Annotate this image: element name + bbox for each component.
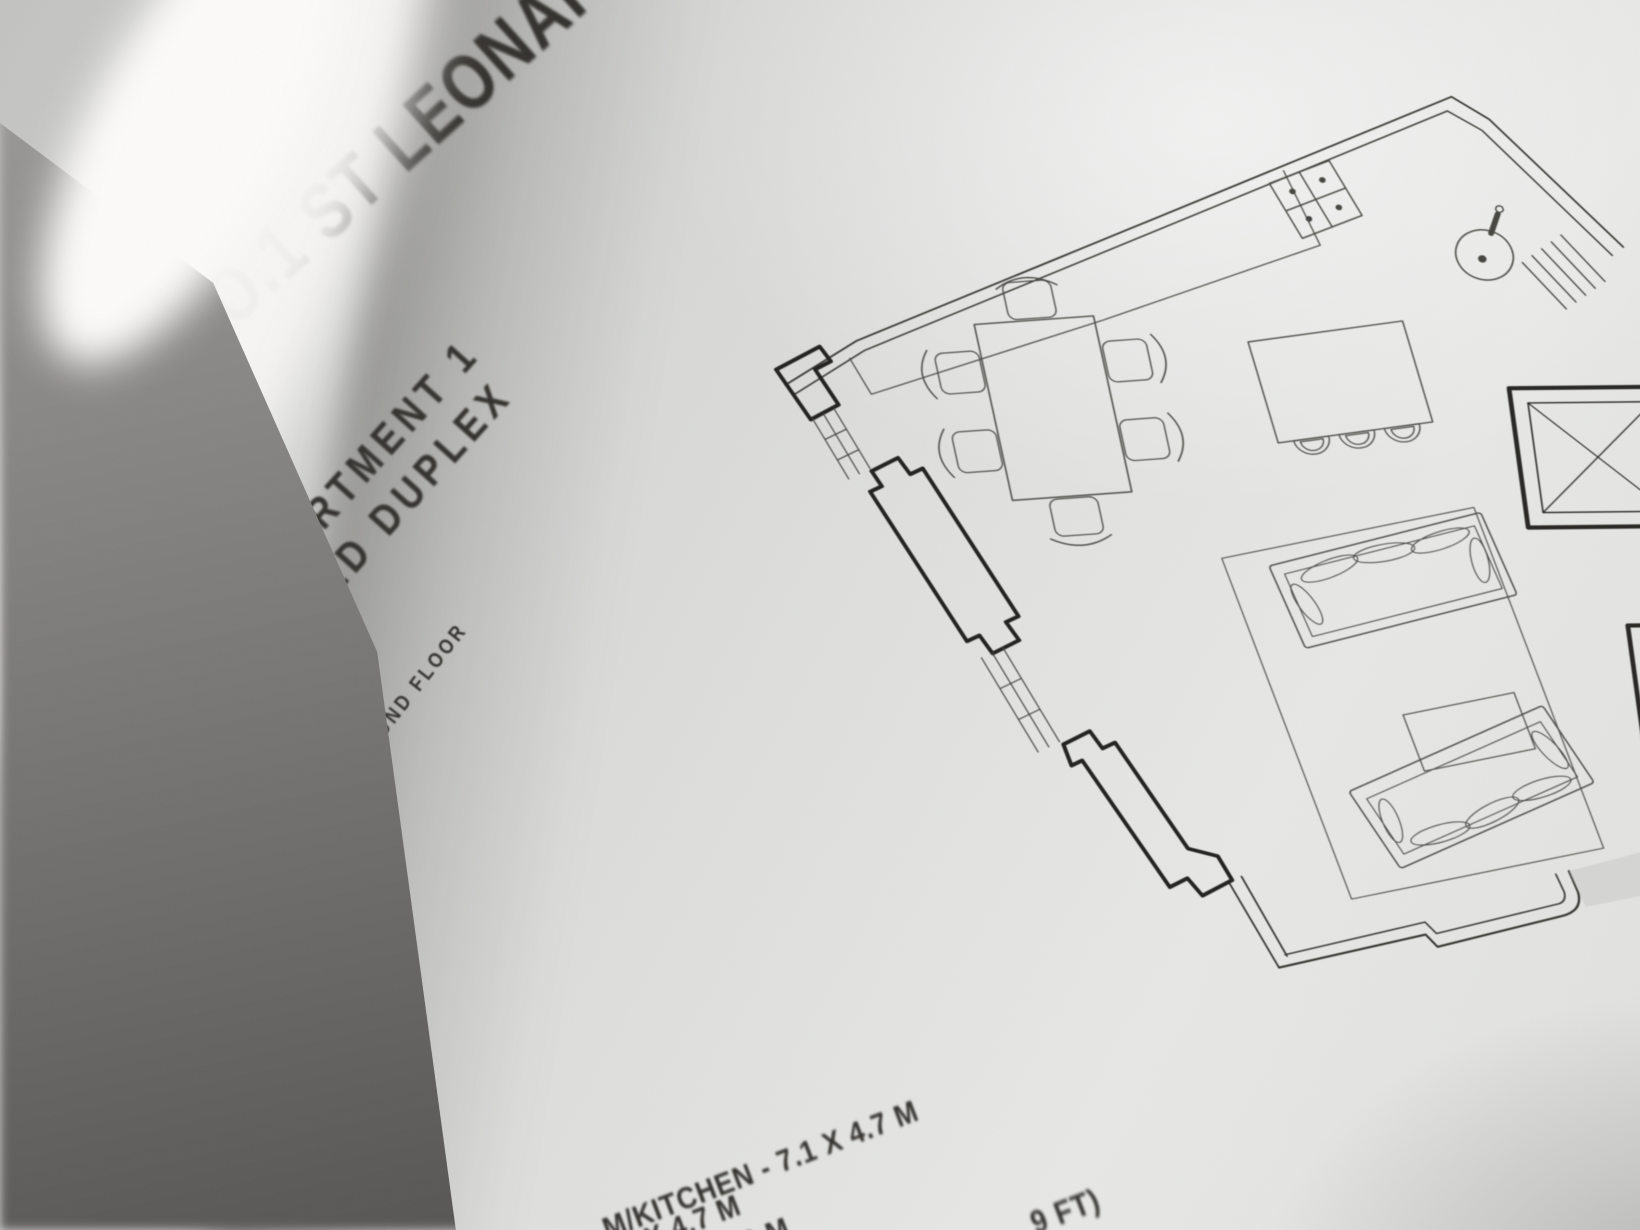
floor-label: GROUND FLOOR (339, 619, 473, 782)
page-title: NO.1 ST LEONARD (150, 0, 660, 375)
dimension-line-4: 9 FT) (1025, 1182, 1105, 1230)
bar-stools (1294, 424, 1424, 457)
sofa-bottom (1349, 705, 1594, 868)
shower-enclosure (1509, 387, 1640, 528)
window-bays (812, 401, 1061, 760)
spine-shadow (175, 0, 725, 1230)
floor-plan (800, 30, 1640, 1124)
kitchen-island (1248, 321, 1437, 459)
sofa-top (1269, 512, 1517, 648)
kitchen-counter (839, 171, 1326, 413)
wall-piers (773, 318, 1234, 930)
exterior-walls (769, 71, 1640, 1059)
utility-box (1628, 624, 1640, 748)
hob (1269, 161, 1362, 239)
book-photo: NO.1 ST LEONARD APARTMENT 1 2 BED DUPLEX… (0, 0, 1640, 1230)
dimension-line-3: 9 M (738, 1210, 796, 1230)
rug (1222, 507, 1604, 899)
dimension-line-1: M/KITCHEN - 7.1 X 4.7 M (598, 1093, 924, 1230)
door-threshold (1565, 827, 1640, 925)
stairs-hatch (1516, 230, 1611, 314)
sink (1438, 205, 1536, 288)
